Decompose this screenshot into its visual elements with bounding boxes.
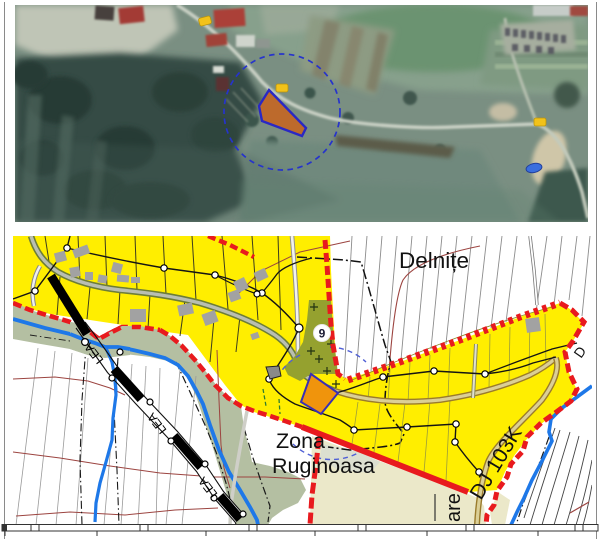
svg-text:Delnițe: Delnițe [399, 248, 469, 273]
svg-text:are: are [443, 493, 465, 522]
svg-text:Ruginoasa: Ruginoasa [272, 454, 375, 478]
svg-text:Zona: Zona [276, 429, 325, 453]
svg-text:9: 9 [319, 327, 326, 341]
